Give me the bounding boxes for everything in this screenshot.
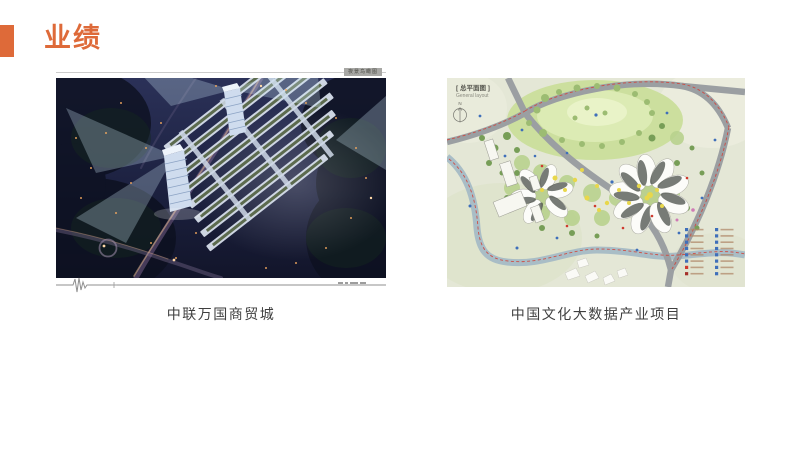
heartbeat-rule-art	[56, 277, 386, 295]
rule-line	[382, 72, 386, 73]
figure-left: 夜景鸟瞰图	[56, 66, 386, 295]
title-accent-bar	[0, 25, 14, 57]
figure-left-top-rule: 夜景鸟瞰图	[56, 66, 386, 78]
figure-left-tag: 夜景鸟瞰图	[344, 68, 382, 76]
plan-title-cn: [ 总平面图 ]	[456, 83, 490, 92]
master-plan-art: N [ 总平面图 ] General layout	[447, 78, 745, 287]
plan-title-en: General layout	[456, 93, 489, 99]
presentation-slide: 业绩 夜景鸟瞰图	[0, 0, 800, 450]
heartbeat-line	[56, 278, 386, 292]
caption-left: 中联万国商贸城	[56, 304, 386, 324]
caption-right: 中国文化大数据产业项目	[447, 304, 745, 324]
north-letter: N	[458, 101, 461, 106]
page-title: 业绩	[44, 22, 102, 54]
rule-line	[56, 72, 344, 73]
night-render-art	[56, 78, 386, 278]
tiny-annotation-marks	[338, 282, 366, 284]
figure-right: N [ 总平面图 ] General layout	[447, 78, 745, 287]
tick-mark	[111, 282, 117, 288]
figure-left-bottom-rule	[56, 277, 386, 295]
night-aerial-rendering	[56, 78, 386, 278]
